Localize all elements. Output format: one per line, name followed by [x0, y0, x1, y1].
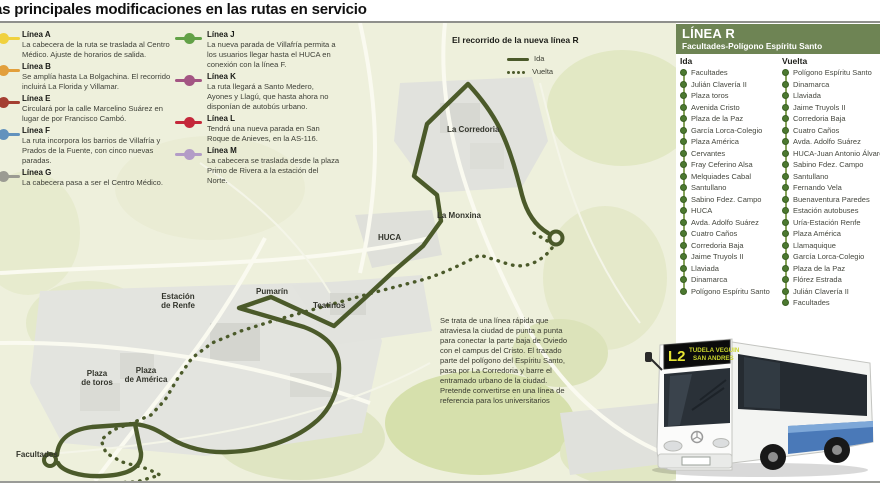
stop-row: Fernando Vela — [782, 182, 880, 194]
stop-row: Estación autobuses — [782, 205, 880, 217]
legend-line-name: Línea B — [22, 62, 176, 72]
route-line-marker — [175, 33, 202, 44]
bus-photo: L2 TUDELA VEGUIN SAN ANDRES — [640, 330, 878, 482]
stop-name: Corredoria Baja — [691, 241, 744, 250]
stop-row: Llaviada — [782, 90, 880, 102]
route-title: El recorrido de la nueva línea R — [452, 35, 579, 45]
stop-row: Plaza de la Paz — [680, 113, 780, 125]
ida-line-swatch — [507, 58, 529, 61]
stop-name: Llamaquique — [793, 241, 836, 250]
stop-row: Cuatro Caños — [680, 228, 780, 240]
stop-row: Julián Clavería II — [680, 79, 780, 91]
panel-title: LÍNEA R — [682, 26, 874, 41]
legend-item-li-nea-a: Línea ALa cabecera de la ruta se traslad… — [0, 30, 176, 60]
route-legend-ida: Ida — [507, 54, 544, 63]
stop-bullet-icon — [680, 115, 687, 122]
stop-bullet-icon — [782, 242, 789, 249]
legend-item-li-nea-m: Línea MLa cabecera se traslada desde la … — [175, 146, 340, 186]
stop-row: Corredoria Baja — [680, 240, 780, 252]
legend-line-name: Línea J — [207, 30, 340, 40]
legend-column-1: Línea ALa cabecera de la ruta se traslad… — [0, 30, 176, 190]
route-line-marker — [0, 65, 20, 76]
stop-row: Jaime Truyols II — [782, 102, 880, 114]
stop-bullet-icon — [782, 265, 789, 272]
bus-display-line: L2 — [668, 348, 686, 365]
stop-row: Buenaventura Paredes — [782, 194, 880, 206]
stop-name: Dinamarca — [691, 275, 727, 284]
footer-divider — [0, 481, 880, 483]
stop-row: Plaza América — [782, 228, 880, 240]
stop-row: Avda. Adolfo Suárez — [680, 217, 780, 229]
stop-name: Plaza de la Paz — [793, 264, 845, 273]
stop-row: Plaza América — [680, 136, 780, 148]
route-line-marker — [0, 33, 20, 44]
stop-bullet-icon — [680, 173, 687, 180]
ida-label: Ida — [534, 54, 544, 63]
bus-display-dest1: TUDELA VEGUIN — [689, 347, 740, 354]
stop-row: Corredoria Baja — [782, 113, 880, 125]
vuelta-dot-swatch — [507, 71, 510, 74]
stop-name: Facultades — [691, 68, 728, 77]
stop-name: Plaza América — [793, 229, 841, 238]
stop-row: Facultades — [782, 297, 880, 309]
stop-bullet-icon — [782, 184, 789, 191]
vuelta-dot-swatch — [512, 71, 515, 74]
stop-row: HUCA-Juan Antonio Álvarez — [782, 148, 880, 160]
stop-row: Uría-Estación Renfe — [782, 217, 880, 229]
stop-bullet-icon — [680, 69, 687, 76]
stop-name: Polígono Espíritu Santo — [793, 68, 872, 77]
stop-row: García Lorca-Colegio — [680, 125, 780, 137]
stop-bullet-icon — [680, 81, 687, 88]
stop-bullet-icon — [782, 219, 789, 226]
stop-name: Santullano — [793, 172, 828, 181]
legend-line-desc: La ruta llegará a Santo Medero, Ayones y… — [207, 82, 340, 112]
stop-name: Avenida Cristo — [691, 103, 740, 112]
stop-row: Dinamarca — [680, 274, 780, 286]
stop-bullet-icon — [782, 173, 789, 180]
stop-name: Santullano — [691, 183, 726, 192]
stop-row: García Lorca-Colegio — [782, 251, 880, 263]
legend-line-desc: La ruta incorpora los barrios de Villafr… — [22, 136, 176, 166]
map-label-pumari-n: Pumarín — [256, 287, 288, 296]
stop-row: HUCA — [680, 205, 780, 217]
stop-bullet-icon — [782, 138, 789, 145]
bus-svg: L2 TUDELA VEGUIN SAN ANDRES — [640, 330, 878, 482]
stop-row: Llamaquique — [782, 240, 880, 252]
stop-row: Sabino Fdez. Campo — [782, 159, 880, 171]
legend-item-li-nea-g: Línea GLa cabecera pasa a ser el Centro … — [0, 168, 176, 188]
stop-name: Jaime Truyols II — [691, 252, 744, 261]
vuelta-label: Vuelta — [532, 67, 553, 76]
stop-name: Estación autobuses — [793, 206, 858, 215]
stop-bullet-icon — [782, 207, 789, 214]
stop-name: Llaviada — [793, 91, 821, 100]
stop-bullet-icon — [782, 104, 789, 111]
city-map: Línea ALa cabecera de la ruta se traslad… — [0, 23, 676, 481]
stop-bullet-icon — [680, 150, 687, 157]
stop-name: Uría-Estación Renfe — [793, 218, 861, 227]
stop-row: Fray Ceferino Alsa — [680, 159, 780, 171]
stop-bullet-icon — [782, 81, 789, 88]
stop-name: Sabino Fdez. Campo — [793, 160, 863, 169]
stop-bullet-icon — [680, 127, 687, 134]
stop-bullet-icon — [782, 253, 789, 260]
ida-stop-list: FacultadesJulián Clavería IIPlaza torosA… — [680, 67, 780, 297]
map-label-huca: HUCA — [378, 233, 401, 242]
stop-row: Melquiades Cabal — [680, 171, 780, 183]
legend-line-name: Línea A — [22, 30, 176, 40]
vuelta-column-header: Vuelta — [782, 56, 807, 66]
stop-row: Plaza de la Paz — [782, 263, 880, 275]
stop-bullet-icon — [782, 161, 789, 168]
stop-bullet-icon — [680, 184, 687, 191]
stop-row: Santullano — [782, 171, 880, 183]
stop-row: Sabino Fdez. Campo — [680, 194, 780, 206]
legend-line-desc: La cabecera se traslada desde la plaza P… — [207, 156, 340, 186]
stop-bullet-icon — [782, 299, 789, 306]
stop-bullet-icon — [680, 276, 687, 283]
stop-name: Cervantes — [691, 149, 725, 158]
stop-row: Flórez Estrada — [782, 274, 880, 286]
stop-bullet-icon — [680, 92, 687, 99]
stop-name: Buenaventura Paredes — [793, 195, 870, 204]
stop-row: Llaviada — [680, 263, 780, 275]
stop-name: Facultades — [793, 298, 830, 307]
stop-bullet-icon — [680, 265, 687, 272]
stop-row: Avenida Cristo — [680, 102, 780, 114]
route-line-marker — [0, 97, 20, 108]
stop-row: Avda. Adolfo Suárez — [782, 136, 880, 148]
stop-bullet-icon — [782, 196, 789, 203]
ida-column-header: Ida — [680, 56, 692, 66]
stop-bullet-icon — [782, 127, 789, 134]
stop-bullet-icon — [782, 69, 789, 76]
route-line-marker — [0, 129, 20, 140]
stop-name: Jaime Truyols II — [793, 103, 846, 112]
legend-item-li-nea-b: Línea BSe amplía hasta La Bolgachina. El… — [0, 62, 176, 92]
stop-bullet-icon — [680, 207, 687, 214]
vuelta-stop-list: Polígono Espíritu SantoDinamarcaLlaviada… — [782, 67, 880, 309]
linea-r-banner: LÍNEA R Facultades-Polígono Espíritu San… — [676, 24, 880, 54]
legend-line-name: Línea L — [207, 114, 340, 124]
stop-name: Julián Clavería II — [793, 287, 849, 296]
map-label-la-monxina: La Monxina — [437, 211, 481, 220]
page-title: as principales modificaciones en las rut… — [0, 1, 367, 18]
map-label-plaza-de-toros: Plaza de toros — [81, 369, 113, 387]
map-label-facultades: Facultades — [16, 450, 58, 459]
stop-name: Melquiades Cabal — [691, 172, 751, 181]
stop-row: Polígono Espíritu Santo — [680, 286, 780, 298]
stop-bullet-icon — [680, 230, 687, 237]
stop-bullet-icon — [782, 276, 789, 283]
legend-line-desc: Circulará por la calle Marcelino Suárez … — [22, 104, 176, 124]
route-line-marker — [175, 149, 202, 160]
stop-bullet-icon — [782, 150, 789, 157]
stop-bullet-icon — [680, 196, 687, 203]
legend-item-li-nea-l: Línea LTendrá una nueva parada en San Ro… — [175, 114, 340, 144]
stop-row: Julián Clavería II — [782, 286, 880, 298]
legend-line-desc: La nueva parada de Villafría permita a l… — [207, 40, 340, 70]
stop-bullet-icon — [782, 115, 789, 122]
map-label-teatinos: Teatinos — [313, 301, 345, 310]
stop-name: Plaza América — [691, 137, 739, 146]
bus-display-dest2: SAN ANDRES — [693, 355, 734, 362]
legend-line-name: Línea E — [22, 94, 176, 104]
stop-bullet-icon — [782, 288, 789, 295]
legend-line-desc: La cabecera pasa a ser el Centro Médico. — [22, 178, 176, 188]
stop-bullet-icon — [680, 242, 687, 249]
legend-line-name: Línea M — [207, 146, 340, 156]
legend-line-name: Línea K — [207, 72, 340, 82]
panel-subtitle: Facultades-Polígono Espíritu Santo — [682, 41, 874, 51]
legend-line-desc: La cabecera de la ruta se traslada al Ce… — [22, 40, 176, 60]
legend-item-li-nea-f: Línea FLa ruta incorpora los barrios de … — [0, 126, 176, 166]
legend-item-li-nea-e: Línea ECirculará por la calle Marcelino … — [0, 94, 176, 124]
stop-name: Cuatro Caños — [691, 229, 737, 238]
stop-row: Cuatro Caños — [782, 125, 880, 137]
route-line-marker — [175, 117, 202, 128]
stop-row: Polígono Espíritu Santo — [782, 67, 880, 79]
stop-name: Sabino Fdez. Campo — [691, 195, 761, 204]
stop-name: Fernando Vela — [793, 183, 842, 192]
map-label-plaza-de-ame-rica: Plaza de América — [125, 366, 168, 384]
stop-bullet-icon — [680, 161, 687, 168]
terminus-poligono-marker — [550, 232, 563, 245]
route-line-marker — [175, 75, 202, 86]
stop-row: Santullano — [680, 182, 780, 194]
stop-name: García Lorca-Colegio — [793, 252, 864, 261]
infographic: as principales modificaciones en las rut… — [0, 0, 880, 495]
map-label-estacio-n-de-renfe: Estación de Renfe — [161, 292, 195, 310]
stop-bullet-icon — [680, 288, 687, 295]
legend-line-name: Línea F — [22, 126, 176, 136]
stop-name: Julián Clavería II — [691, 80, 747, 89]
stop-name: Fray Ceferino Alsa — [691, 160, 753, 169]
stop-row: Plaza toros — [680, 90, 780, 102]
stop-name: Llaviada — [691, 264, 719, 273]
stop-name: Plaza de la Paz — [691, 114, 743, 123]
stop-row: Facultades — [680, 67, 780, 79]
stop-name: HUCA-Juan Antonio Álvarez — [793, 149, 880, 158]
stop-name: Corredoria Baja — [793, 114, 846, 123]
stop-name: García Lorca-Colegio — [691, 126, 762, 135]
vuelta-dot-swatch — [517, 71, 520, 74]
stop-bullet-icon — [680, 138, 687, 145]
stop-name: Avda. Adolfo Suárez — [793, 137, 861, 146]
stop-bullet-icon — [782, 230, 789, 237]
stop-name: Plaza toros — [691, 91, 729, 100]
stop-row: Dinamarca — [782, 79, 880, 91]
stop-name: Cuatro Caños — [793, 126, 839, 135]
map-label-la-corredoria: La Corredoria — [447, 125, 499, 134]
legend-item-li-nea-j: Línea JLa nueva parada de Villafría perm… — [175, 30, 340, 70]
stop-bullet-icon — [782, 92, 789, 99]
route-description: Se trata de una línea rápida que atravie… — [440, 316, 573, 406]
stop-bullet-icon — [680, 104, 687, 111]
route-line-marker — [0, 171, 20, 182]
legend-line-desc: Se amplía hasta La Bolgachina. El recorr… — [22, 72, 176, 92]
stop-name: HUCA — [691, 206, 712, 215]
stop-name: Dinamarca — [793, 80, 829, 89]
stop-row: Jaime Truyols II — [680, 251, 780, 263]
legend-column-2: Línea JLa nueva parada de Villafría perm… — [175, 30, 340, 188]
route-legend-vuelta: Vuelta — [507, 67, 553, 76]
stop-bullet-icon — [680, 253, 687, 260]
stop-bullet-icon — [680, 219, 687, 226]
stop-name: Avda. Adolfo Suárez — [691, 218, 759, 227]
vuelta-dot-swatch — [522, 71, 525, 74]
legend-line-desc: Tendrá una nueva parada en San Roque de … — [207, 124, 340, 144]
legend-line-name: Línea G — [22, 168, 176, 178]
stop-name: Flórez Estrada — [793, 275, 842, 284]
stop-row: Cervantes — [680, 148, 780, 160]
legend-item-li-nea-k: Línea KLa ruta llegará a Santo Medero, A… — [175, 72, 340, 112]
stop-name: Polígono Espíritu Santo — [691, 287, 770, 296]
